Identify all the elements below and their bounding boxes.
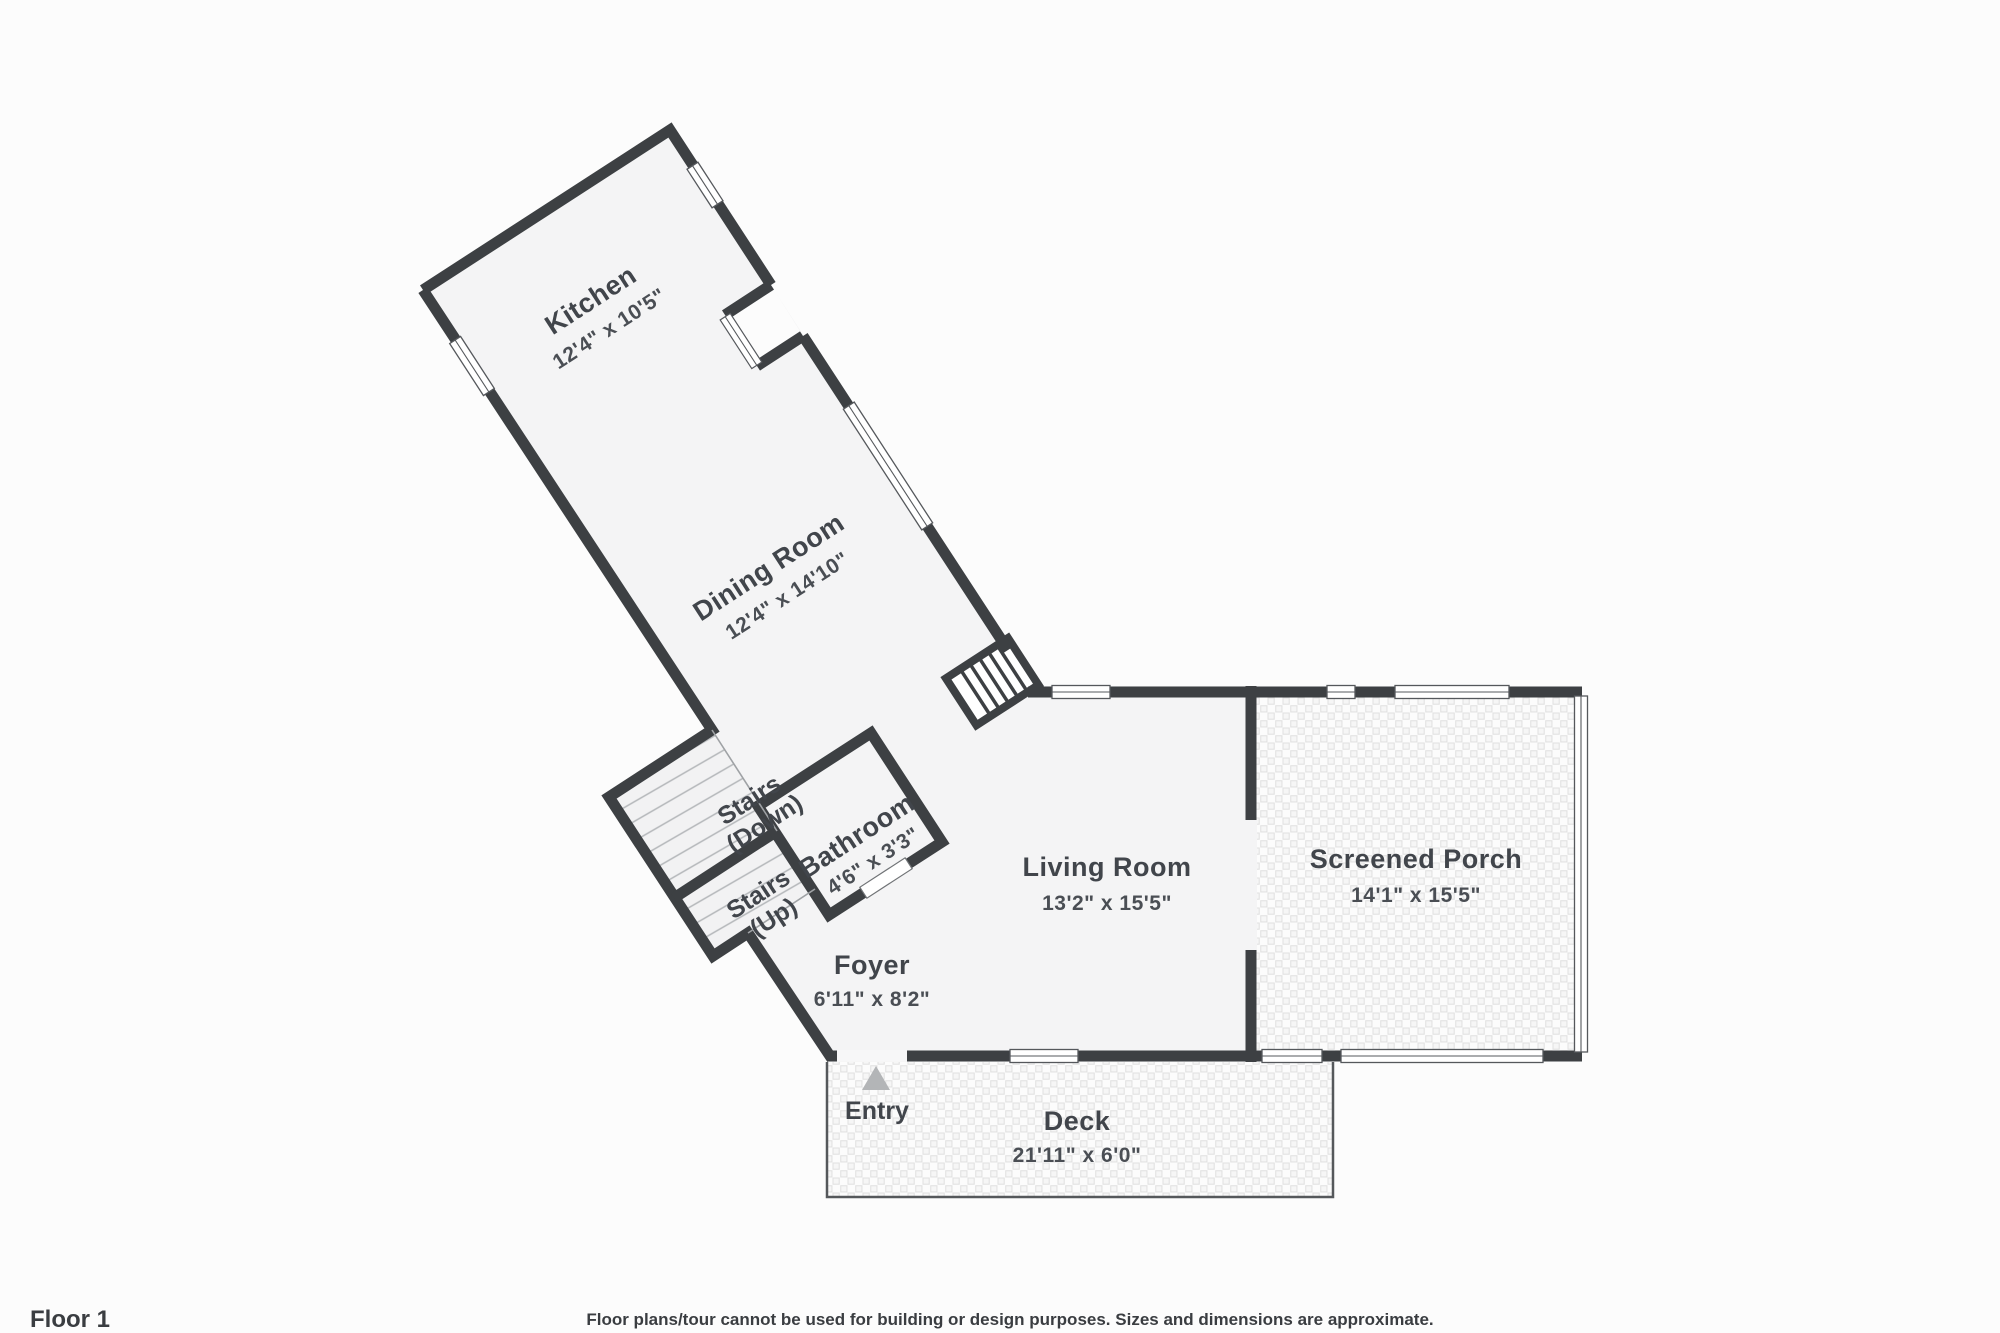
window-icon	[1052, 686, 1110, 699]
deck-name: Deck	[1044, 1106, 1111, 1136]
window-icon	[1327, 686, 1355, 699]
window-icon	[1262, 1050, 1322, 1063]
foyer-dims: 6'11" x 8'2"	[814, 988, 931, 1011]
window-icon	[1341, 1050, 1543, 1063]
foyer-name: Foyer	[834, 950, 910, 980]
deck-dims: 21'11" x 6'0"	[1013, 1144, 1142, 1167]
screened-porch-dims: 14'1" x 15'5"	[1351, 884, 1481, 907]
entry-door-opening	[837, 1050, 907, 1062]
living-room-dims: 13'2" x 15'5"	[1042, 892, 1172, 915]
window-icon	[1010, 1050, 1078, 1063]
screened-porch-name: Screened Porch	[1310, 844, 1523, 874]
floor-plan-svg: Kitchen 12'4" x 10'5" Dining Room 12'4" …	[0, 0, 2000, 1333]
floor-label: Floor 1	[30, 1306, 110, 1333]
floor-plan-page: Kitchen 12'4" x 10'5" Dining Room 12'4" …	[0, 0, 2000, 1333]
entry-label: Entry	[845, 1097, 909, 1125]
living-room-name: Living Room	[1023, 852, 1192, 882]
porch-door-opening	[1245, 820, 1257, 950]
screened-porch-floor	[1251, 692, 1581, 1056]
window-icon	[1395, 686, 1509, 699]
screen-wall	[1575, 696, 1588, 1052]
disclaimer-text: Floor plans/tour cannot be used for buil…	[586, 1310, 1433, 1329]
